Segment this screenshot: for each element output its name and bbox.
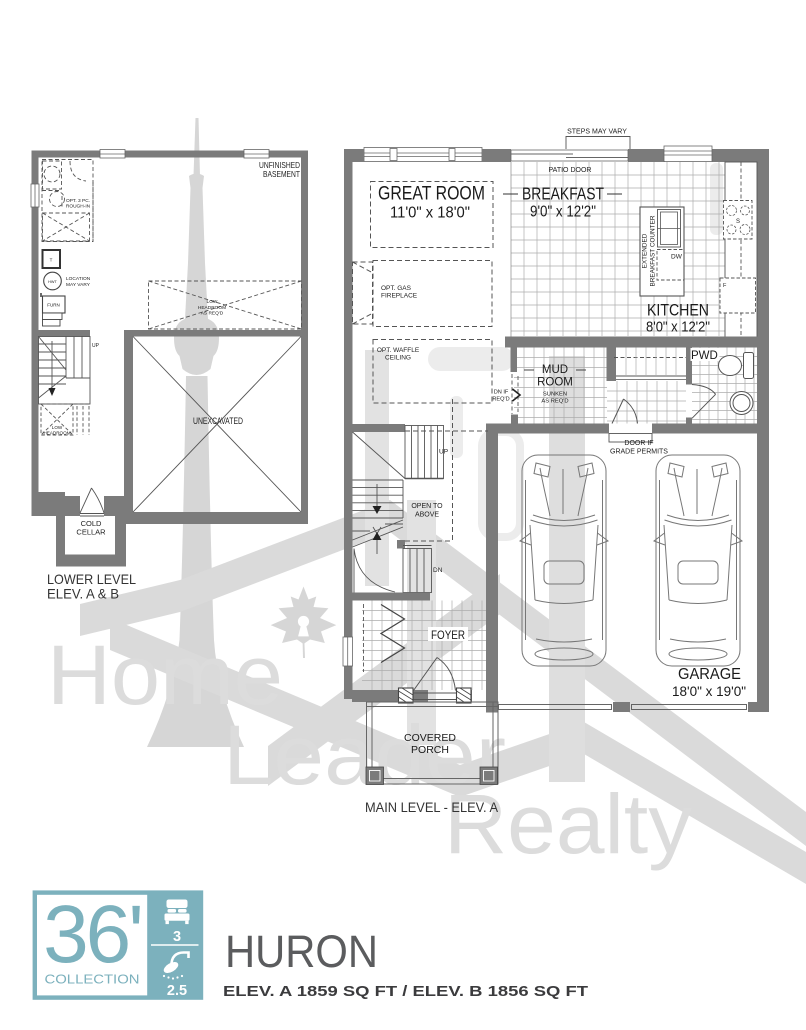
- svg-text:DOOR IF: DOOR IF: [624, 440, 653, 447]
- svg-text:ROUGH-IN: ROUGH-IN: [66, 204, 91, 210]
- svg-text:COVERED: COVERED: [404, 732, 456, 744]
- svg-text:ELEV. A & B: ELEV. A & B: [47, 586, 119, 602]
- svg-text:CEILING: CEILING: [385, 355, 411, 362]
- svg-text:OPT. 3 PC.: OPT. 3 PC.: [66, 198, 90, 204]
- svg-text:S: S: [736, 219, 740, 225]
- svg-text:HWT: HWT: [48, 280, 57, 284]
- svg-text:CELLAR: CELLAR: [76, 528, 106, 537]
- svg-text:LOW: LOW: [52, 425, 63, 430]
- svg-text:'HEADROOM': 'HEADROOM': [43, 431, 72, 436]
- svg-text:9'0" x 12'2": 9'0" x 12'2": [530, 204, 596, 221]
- svg-text:PORCH: PORCH: [411, 744, 449, 756]
- svg-text:FOYER: FOYER: [431, 630, 465, 642]
- svg-text:T: T: [50, 258, 53, 263]
- svg-text:EXTENDED: EXTENDED: [642, 233, 649, 268]
- svg-text:ROOM: ROOM: [537, 377, 573, 389]
- svg-text:FIREPLACE: FIREPLACE: [381, 293, 418, 300]
- svg-text:UP: UP: [92, 343, 100, 349]
- svg-text:ELEV. A 1859 SQ FT / ELEV. B 1: ELEV. A 1859 SQ FT / ELEV. B 1856 SQ FT: [223, 984, 588, 1000]
- svg-text:PATIO DOOR: PATIO DOOR: [549, 167, 592, 174]
- svg-text:36': 36': [43, 889, 141, 980]
- svg-text:OPT. WAFFLE: OPT. WAFFLE: [377, 347, 420, 354]
- svg-text:PWD: PWD: [691, 350, 718, 362]
- svg-text:3: 3: [173, 929, 181, 945]
- svg-text:REQ'D: REQ'D: [492, 397, 509, 403]
- svg-text:MAY VARY: MAY VARY: [66, 282, 91, 288]
- svg-text:Realty: Realty: [444, 777, 692, 871]
- svg-text:AS REQ'D: AS REQ'D: [541, 399, 568, 405]
- svg-text:BREAKFAST COUNTER: BREAKFAST COUNTER: [650, 215, 657, 286]
- svg-text:GRADE PERMITS: GRADE PERMITS: [610, 449, 668, 456]
- svg-text:STEPS MAY VARY: STEPS MAY VARY: [567, 129, 627, 136]
- svg-text:DW: DW: [671, 254, 683, 261]
- svg-text:LOCATION: LOCATION: [66, 276, 91, 282]
- svg-text:ABOVE: ABOVE: [415, 512, 439, 519]
- svg-text:GREAT ROOM: GREAT ROOM: [378, 184, 485, 205]
- svg-text:MAIN LEVEL - ELEV. A: MAIN LEVEL - ELEV. A: [365, 799, 499, 815]
- svg-text:BASEMENT: BASEMENT: [263, 169, 300, 179]
- svg-text:COLLECTION: COLLECTION: [45, 972, 140, 987]
- svg-text:HURON: HURON: [225, 926, 378, 977]
- svg-text:HEADROOM: HEADROOM: [198, 305, 226, 311]
- svg-text:MUD: MUD: [542, 364, 568, 376]
- svg-text:FURN: FURN: [47, 303, 60, 308]
- svg-text:SUNKEN: SUNKEN: [543, 392, 567, 398]
- svg-text:OPEN TO: OPEN TO: [411, 503, 443, 510]
- svg-text:AS REQ'D: AS REQ'D: [201, 311, 224, 317]
- svg-text:DN: DN: [433, 567, 443, 574]
- svg-text:BREAKFAST: BREAKFAST: [522, 184, 604, 204]
- svg-text:LOW: LOW: [207, 299, 218, 305]
- svg-text:KITCHEN: KITCHEN: [647, 301, 709, 320]
- svg-text:8'0" x 12'2": 8'0" x 12'2": [646, 319, 710, 336]
- svg-text:18'0" x 19'0": 18'0" x 19'0": [672, 684, 746, 699]
- svg-text:UP: UP: [439, 449, 448, 456]
- svg-text:11'0" x 18'0": 11'0" x 18'0": [390, 205, 470, 222]
- svg-text:DN IF: DN IF: [494, 390, 509, 396]
- svg-text:GARAGE: GARAGE: [678, 666, 741, 683]
- svg-text:OPT. GAS: OPT. GAS: [381, 285, 412, 292]
- svg-text:UNEXCAVATED: UNEXCAVATED: [193, 416, 243, 426]
- svg-text:2.5: 2.5: [167, 983, 187, 999]
